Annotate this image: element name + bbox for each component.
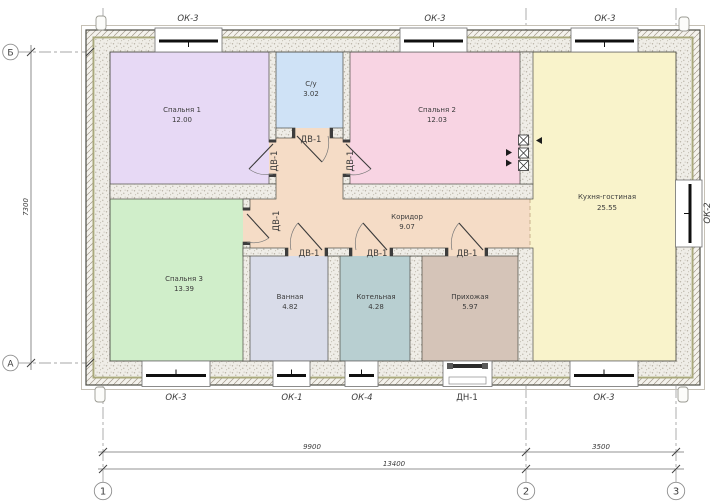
dimension-total-width: 13400	[383, 460, 406, 468]
window-label: ОК-3	[594, 14, 615, 24]
door-label: ДВ-1	[299, 249, 320, 259]
axis-label-1: 1	[100, 487, 106, 498]
room-label: Спальня 3	[165, 275, 203, 283]
window-label: ОК-3	[177, 14, 198, 24]
dimension-span-2-3: 3500	[592, 443, 610, 451]
door-label: ДВ-1	[270, 151, 280, 172]
axis-label-3: 3	[673, 487, 679, 498]
room-area: 4.82	[282, 303, 298, 311]
room-label: Коридор	[391, 213, 423, 221]
window-ok2-right	[676, 180, 703, 247]
axis-label-b: Б	[7, 49, 13, 59]
room-area: 5.97	[462, 303, 478, 311]
floor-plan-page: Спальня 1 12.00 С/у 3.02 Спальня 2 12.03…	[0, 0, 716, 502]
axis-label-2: 2	[523, 487, 529, 498]
door-label: ДВ-1	[367, 249, 388, 259]
window-ok3-top-2	[400, 28, 467, 52]
room-area: 25.55	[597, 204, 617, 212]
room-area: 13.39	[174, 285, 194, 293]
room-area: 12.03	[427, 116, 447, 124]
room-label: Спальня 2	[418, 106, 456, 114]
room-label: Спальня 1	[163, 106, 201, 114]
window-label: ОК-3	[424, 14, 445, 24]
room-label: С/у	[305, 80, 316, 88]
room-area: 12.00	[172, 116, 192, 124]
window-ok3-top-3	[571, 28, 638, 52]
door-label: ДВ-1	[272, 211, 282, 232]
room-area: 4.28	[368, 303, 384, 311]
door-label: ДВ-1	[301, 135, 322, 145]
room-label: Кухня-гостиная	[578, 193, 636, 201]
floor-plan-drawing: Спальня 1 12.00 С/у 3.02 Спальня 2 12.03…	[0, 0, 716, 502]
dimension-span-1-2: 9900	[303, 443, 321, 451]
window-ok1-bottom	[273, 361, 310, 387]
entry-door	[443, 361, 492, 387]
door-label: ДВ-1	[457, 249, 478, 259]
window-ok3-top-1	[155, 28, 222, 52]
door-label: ДВ-1	[346, 151, 356, 172]
entry-door-label: ДН-1	[456, 393, 478, 403]
room-label: Котельная	[356, 293, 395, 301]
window-label: ОК-3	[165, 393, 186, 403]
room-label: Ванная	[277, 293, 304, 301]
window-label: ОК-4	[351, 393, 372, 403]
window-ok3-bottom	[142, 361, 210, 387]
window-label: ОК-3	[593, 393, 614, 403]
room-fills	[110, 52, 676, 361]
window-label: ОК-2	[703, 202, 713, 223]
room-label: Прихожая	[451, 293, 489, 301]
window-ok3-bottom-right	[570, 361, 638, 387]
window-ok4-bottom	[345, 361, 378, 387]
room-area: 3.02	[303, 90, 319, 98]
dimension-total-height: 7300	[22, 198, 30, 216]
axis-label-a: А	[7, 360, 14, 370]
room-area: 9.07	[399, 223, 415, 231]
window-label: ОК-1	[281, 393, 302, 403]
